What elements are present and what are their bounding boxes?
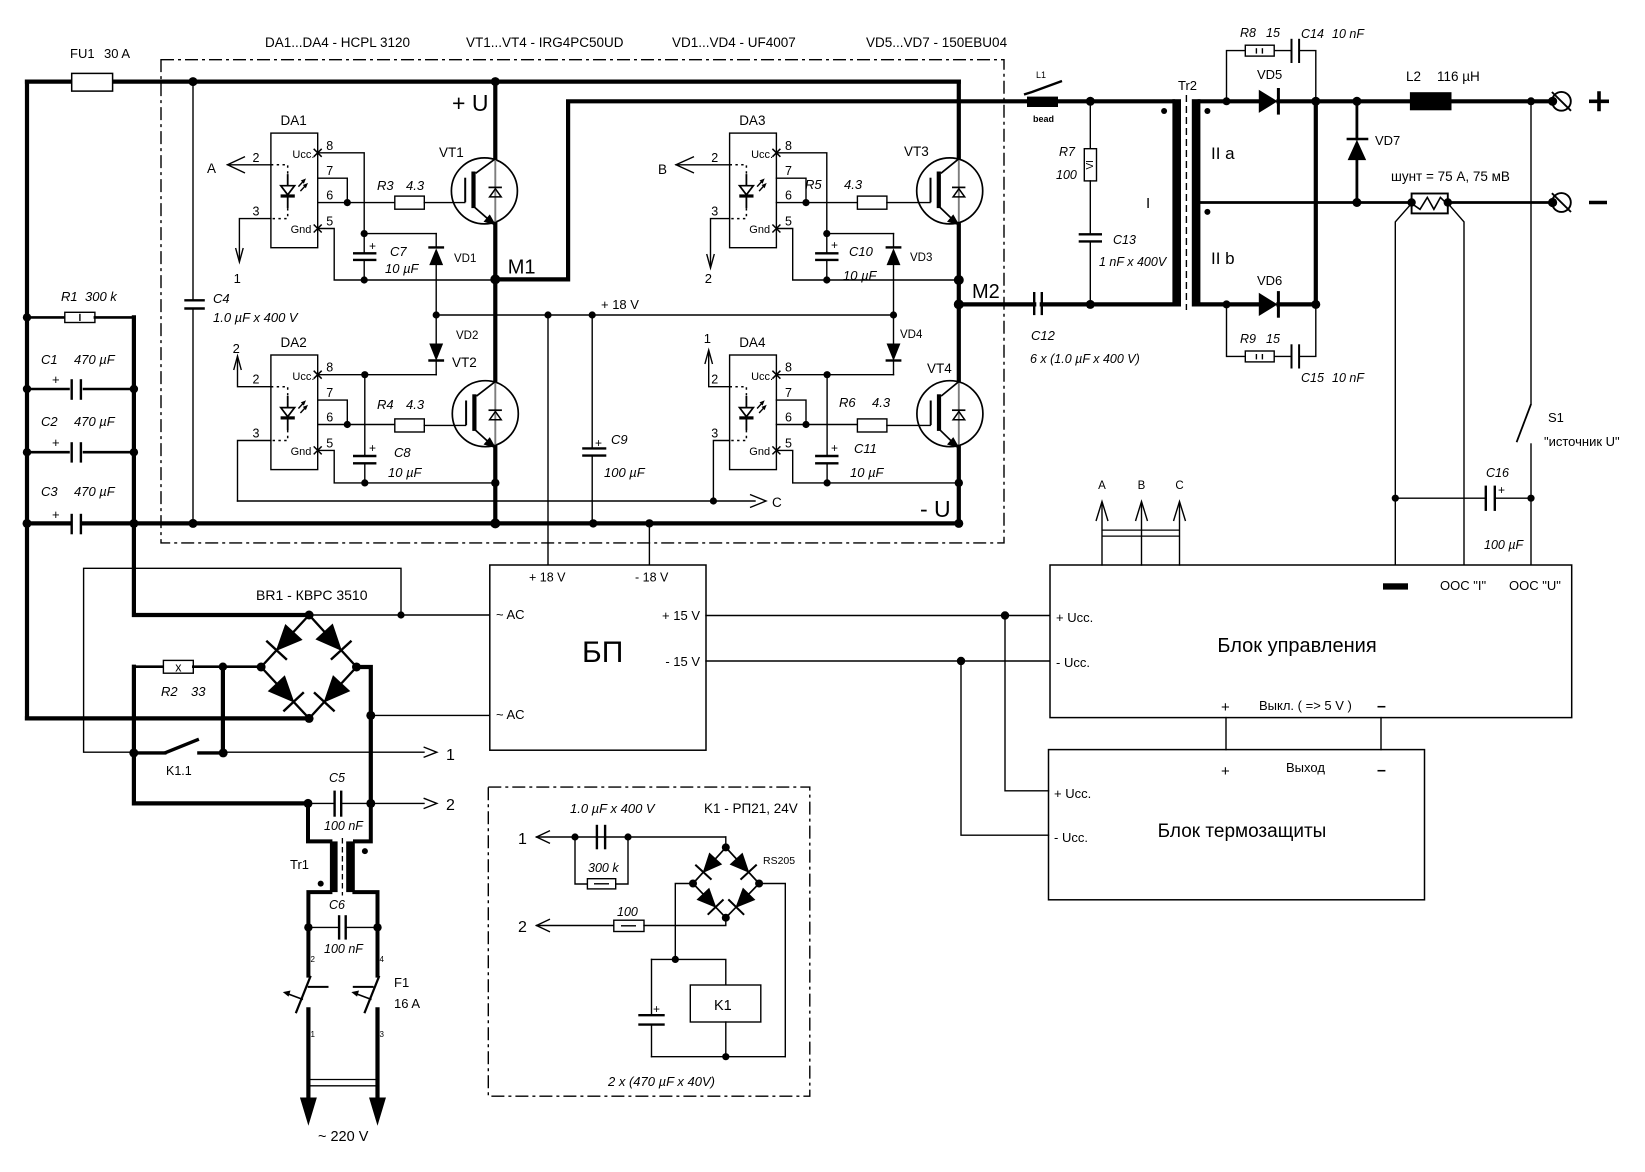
svg-text:–: – <box>1377 762 1386 779</box>
svg-text:R4: R4 <box>377 397 394 412</box>
svg-text:VT2: VT2 <box>452 355 477 370</box>
svg-text:4.3: 4.3 <box>844 177 863 192</box>
svg-text:+: + <box>1221 763 1230 780</box>
svg-text:10 µF: 10 µF <box>388 465 423 480</box>
svg-text:+: + <box>52 435 60 450</box>
svg-text:2 x (470 µF x 40V): 2 x (470 µF x 40V) <box>607 1074 715 1089</box>
svg-text:C8: C8 <box>394 445 411 460</box>
svg-text:+: + <box>369 441 376 455</box>
svg-text:470 µF: 470 µF <box>74 484 116 499</box>
svg-text:L1: L1 <box>1036 70 1046 80</box>
svg-text:L2: L2 <box>1406 69 1421 84</box>
svg-text:R1: R1 <box>61 289 78 304</box>
svg-text:БП: БП <box>582 636 623 669</box>
svg-text:+: + <box>369 239 376 253</box>
svg-text:VT4: VT4 <box>927 361 952 376</box>
svg-text:+ 18 V: + 18 V <box>529 571 566 585</box>
svg-text:C4: C4 <box>213 291 230 306</box>
svg-text:R3: R3 <box>377 178 394 193</box>
svg-text:VD7: VD7 <box>1375 133 1400 148</box>
svg-text:1 nF x 400V: 1 nF x 400V <box>1099 255 1168 269</box>
svg-text:2: 2 <box>311 955 316 964</box>
svg-text:10 nF: 10 nF <box>1332 27 1365 41</box>
svg-text:100 nF: 100 nF <box>324 942 364 956</box>
svg-text:10 µF: 10 µF <box>843 268 878 283</box>
svg-text:R5: R5 <box>805 177 822 192</box>
svg-text:10 nF: 10 nF <box>1332 371 1365 385</box>
svg-text:FU1: FU1 <box>70 46 95 61</box>
svg-text:VD6: VD6 <box>1257 273 1282 288</box>
svg-text:- 18 V: - 18 V <box>635 571 669 585</box>
svg-text:–: – <box>1377 698 1386 715</box>
svg-text:C6: C6 <box>329 898 345 912</box>
svg-text:+ Ucc.: + Ucc. <box>1056 610 1093 625</box>
svg-text:116 µH: 116 µH <box>1437 69 1480 84</box>
svg-text:30 A: 30 A <box>104 46 130 61</box>
svg-text:BR1 - КВРС 3510: BR1 - КВРС 3510 <box>256 587 368 603</box>
svg-text:B: B <box>658 162 667 177</box>
svg-text:Выход: Выход <box>1286 760 1325 775</box>
svg-text:~ AC: ~ AC <box>496 707 525 722</box>
svg-text:+: + <box>831 441 838 455</box>
svg-text:M2: M2 <box>972 281 1000 303</box>
svg-text:5: 5 <box>785 215 792 229</box>
svg-text:VI: VI <box>1085 160 1096 169</box>
svg-text:Ucc.: Ucc. <box>292 149 314 161</box>
svg-text:VT3: VT3 <box>904 144 929 159</box>
svg-text:- U: - U <box>920 496 951 522</box>
svg-text:4.3: 4.3 <box>406 397 425 412</box>
svg-text:+: + <box>595 436 602 450</box>
svg-text:C: C <box>1175 480 1183 492</box>
svg-text:VT1...VT4 - IRG4PC50UD: VT1...VT4 - IRG4PC50UD <box>466 35 624 50</box>
svg-text:4.3: 4.3 <box>872 395 891 410</box>
svg-text:1: 1 <box>518 831 527 848</box>
svg-text:+: + <box>831 238 838 252</box>
svg-text:R9: R9 <box>1240 332 1256 346</box>
svg-text:+: + <box>1498 483 1505 497</box>
svg-text:VD5...VD7 - 150EBU04: VD5...VD7 - 150EBU04 <box>866 35 1008 50</box>
svg-text:470 µF: 470 µF <box>74 352 116 367</box>
svg-text:Блок термозащиты: Блок термозащиты <box>1158 821 1327 842</box>
svg-text:F1: F1 <box>394 975 409 990</box>
svg-text:R6: R6 <box>839 395 856 410</box>
svg-text:Ucc.: Ucc. <box>751 371 773 383</box>
svg-text:2: 2 <box>233 341 240 356</box>
svg-text:100: 100 <box>1056 168 1077 182</box>
svg-text:K1 - РП21, 24V: K1 - РП21, 24V <box>704 801 798 816</box>
svg-text:I: I <box>1146 195 1150 212</box>
svg-text:3: 3 <box>253 427 260 441</box>
svg-text:2: 2 <box>518 919 527 936</box>
svg-text:100: 100 <box>617 905 638 919</box>
svg-text:RS205: RS205 <box>763 855 795 867</box>
svg-text:8: 8 <box>326 139 333 153</box>
svg-text:4.3: 4.3 <box>406 178 425 193</box>
svg-text:Ucc.: Ucc. <box>292 371 314 383</box>
svg-text:II b: II b <box>1211 249 1235 268</box>
svg-text:~ 220 V: ~ 220 V <box>318 1129 369 1145</box>
svg-text:Gnd: Gnd <box>749 224 770 236</box>
svg-text:C5: C5 <box>329 771 345 785</box>
svg-text:VD5: VD5 <box>1257 67 1282 82</box>
svg-text:VD1...VD4 - UF4007: VD1...VD4 - UF4007 <box>672 35 796 50</box>
svg-text:3: 3 <box>380 1030 385 1039</box>
svg-text:R7: R7 <box>1059 145 1076 159</box>
svg-text:2: 2 <box>253 151 260 165</box>
svg-text:+: + <box>52 372 60 387</box>
svg-text:6: 6 <box>326 411 333 425</box>
svg-text:ООС "U": ООС "U" <box>1509 578 1561 593</box>
svg-text:VD4: VD4 <box>900 329 923 341</box>
svg-text:B: B <box>1138 480 1146 492</box>
svg-text:300 k: 300 k <box>85 289 118 304</box>
svg-text:6: 6 <box>785 189 792 203</box>
svg-text:100 µF: 100 µF <box>1484 538 1525 552</box>
svg-text:A: A <box>207 161 216 176</box>
svg-text:шунт = 75 А, 75 мВ: шунт = 75 А, 75 мВ <box>1391 169 1510 184</box>
svg-text:DA3: DA3 <box>739 113 765 128</box>
svg-text:R8: R8 <box>1240 26 1256 40</box>
svg-text:1: 1 <box>234 271 241 286</box>
svg-text:470 µF: 470 µF <box>74 414 116 429</box>
svg-text:1: 1 <box>704 331 711 346</box>
svg-text:10 µF: 10 µF <box>850 465 885 480</box>
svg-text:100 µF: 100 µF <box>604 465 646 480</box>
svg-text:8: 8 <box>785 361 792 375</box>
svg-text:2: 2 <box>711 373 718 387</box>
svg-text:C11: C11 <box>854 441 877 456</box>
svg-text:100 nF: 100 nF <box>324 819 364 833</box>
svg-text:bead: bead <box>1033 114 1054 124</box>
svg-text:Gnd: Gnd <box>291 446 312 458</box>
svg-text:~ AC: ~ AC <box>496 607 525 622</box>
svg-text:+: + <box>52 507 60 522</box>
svg-text:+ U: + U <box>452 90 488 116</box>
svg-text:C1: C1 <box>41 352 58 367</box>
svg-text:C7: C7 <box>390 244 407 259</box>
svg-text:1.0 µF x 400 V: 1.0 µF x 400 V <box>570 801 656 816</box>
svg-text:C14: C14 <box>1301 27 1324 41</box>
svg-text:ООС "I": ООС "I" <box>1440 578 1486 593</box>
svg-text:VT1: VT1 <box>439 145 464 160</box>
svg-text:+: + <box>653 1002 660 1016</box>
svg-text:x: x <box>175 661 182 675</box>
svg-text:VD1: VD1 <box>454 253 476 265</box>
svg-text:Tr2: Tr2 <box>1178 78 1197 93</box>
svg-text:DA4: DA4 <box>739 335 766 350</box>
svg-text:8: 8 <box>785 139 792 153</box>
svg-text:C15: C15 <box>1301 371 1324 385</box>
svg-text:Блок управления: Блок управления <box>1217 635 1376 657</box>
svg-text:1.0 µF x 400 V: 1.0 µF x 400 V <box>213 310 299 325</box>
svg-text:C2: C2 <box>41 414 58 429</box>
svg-text:R2: R2 <box>161 684 178 699</box>
svg-text:7: 7 <box>326 164 333 178</box>
svg-text:C12: C12 <box>1031 328 1056 343</box>
svg-text:C9: C9 <box>611 432 628 447</box>
svg-text:4: 4 <box>380 955 385 964</box>
svg-text:- Ucc.: - Ucc. <box>1056 655 1090 670</box>
svg-text:M1: M1 <box>508 257 536 279</box>
svg-text:Gnd: Gnd <box>749 446 770 458</box>
svg-text:6: 6 <box>785 411 792 425</box>
svg-text:33: 33 <box>191 684 206 699</box>
svg-text:C3: C3 <box>41 484 58 499</box>
svg-text:7: 7 <box>785 164 792 178</box>
svg-text:Tr1: Tr1 <box>290 857 309 872</box>
svg-text:A: A <box>1098 480 1106 492</box>
svg-text:6: 6 <box>326 189 333 203</box>
svg-text:- 15 V: - 15 V <box>665 654 700 669</box>
svg-text:5: 5 <box>326 215 333 229</box>
svg-text:16 A: 16 A <box>394 996 420 1011</box>
svg-text:+ 15 V: + 15 V <box>662 608 700 623</box>
svg-text:C: C <box>772 495 782 510</box>
svg-text:2: 2 <box>446 797 455 814</box>
svg-text:15: 15 <box>1266 332 1280 346</box>
svg-text:3: 3 <box>711 205 718 219</box>
svg-text:"источник U": "источник U" <box>1544 434 1620 449</box>
svg-text:5: 5 <box>326 436 333 450</box>
svg-text:+: + <box>1221 699 1230 716</box>
svg-text:+ 18 V: + 18 V <box>601 297 639 312</box>
svg-text:C16: C16 <box>1486 466 1509 480</box>
svg-text:Gnd: Gnd <box>291 224 312 236</box>
svg-text:S1: S1 <box>1548 410 1564 425</box>
svg-text:7: 7 <box>785 386 792 400</box>
svg-text:300 k: 300 k <box>588 861 619 875</box>
svg-text:15: 15 <box>1266 26 1280 40</box>
svg-text:1: 1 <box>311 1030 316 1039</box>
svg-text:2: 2 <box>253 373 260 387</box>
svg-text:3: 3 <box>711 427 718 441</box>
svg-text:K1.1: K1.1 <box>166 764 192 778</box>
svg-text:2: 2 <box>711 151 718 165</box>
svg-text:+ Ucc.: + Ucc. <box>1054 786 1091 801</box>
svg-text:5: 5 <box>785 436 792 450</box>
svg-text:VD2: VD2 <box>456 330 478 342</box>
svg-text:1: 1 <box>446 747 455 764</box>
svg-text:6 x (1.0 µF x 400 V): 6 x (1.0 µF x 400 V) <box>1030 352 1140 366</box>
svg-text:C13: C13 <box>1113 233 1136 247</box>
svg-text:10 µF: 10 µF <box>385 261 420 276</box>
svg-text:C10: C10 <box>849 244 874 259</box>
svg-text:DA2: DA2 <box>281 335 307 350</box>
svg-text:DA1...DA4 - HCPL 3120: DA1...DA4 - HCPL 3120 <box>265 35 410 50</box>
svg-text:VD3: VD3 <box>910 252 932 264</box>
svg-text:DA1: DA1 <box>281 113 307 128</box>
svg-text:7: 7 <box>326 386 333 400</box>
svg-text:3: 3 <box>253 205 260 219</box>
svg-text:Выкл. ( => 5 V ): Выкл. ( => 5 V ) <box>1259 698 1352 713</box>
svg-text:II a: II a <box>1211 144 1235 163</box>
svg-text:Ucc.: Ucc. <box>751 149 773 161</box>
svg-text:K1: K1 <box>714 998 732 1014</box>
svg-text:8: 8 <box>326 361 333 375</box>
svg-text:- Ucc.: - Ucc. <box>1054 830 1088 845</box>
svg-text:2: 2 <box>705 271 712 286</box>
